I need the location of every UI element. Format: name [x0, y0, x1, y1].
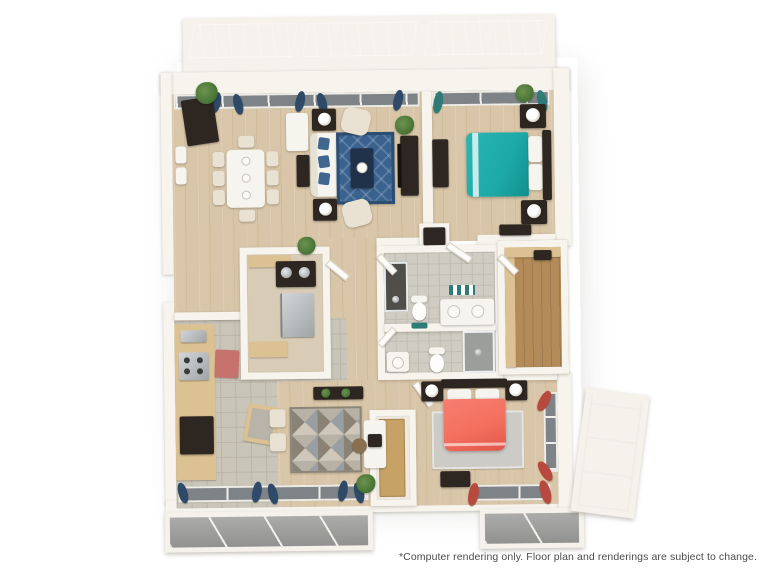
bedroom2-storage-bench: [440, 471, 470, 487]
disclaimer-text: *Computer rendering only. Floor plan and…: [399, 551, 757, 563]
sofa-pillow: [318, 137, 330, 150]
dining-chair: [267, 170, 279, 185]
kitchen-range: [179, 352, 209, 380]
range-burner: [197, 368, 203, 374]
kitchen-sink: [181, 330, 207, 342]
range-burner: [184, 368, 190, 374]
bedroom1-pillow: [528, 136, 542, 162]
den-side-chair: [269, 409, 285, 427]
toilet-bath1: [412, 302, 426, 320]
kitchen-wall-oven: [180, 416, 214, 454]
range-burner: [184, 357, 190, 363]
dining-chair: [213, 190, 225, 205]
refrigerator: [280, 293, 315, 337]
tv-screen: [397, 144, 402, 188]
media-console: [400, 136, 419, 196]
dining-place-setting: [242, 191, 251, 200]
wall-east-bedroom2: [557, 372, 573, 510]
laundry-shelf: [250, 341, 288, 357]
floor-plan: [0, 0, 764, 573]
wall-art-frame: [175, 146, 186, 163]
wall-art-frame: [176, 167, 187, 184]
sofa-pillow: [318, 172, 330, 185]
dining-place-setting: [242, 174, 251, 183]
bedroom1-bed-throw: [472, 133, 479, 197]
coffee-table-tray: [356, 162, 367, 173]
bedroom1-headboard: [542, 130, 552, 200]
balcony-south-left-floor: [170, 515, 368, 547]
dining-chair: [212, 152, 224, 167]
dining-chair: [239, 210, 255, 222]
dining-chair: [267, 189, 279, 204]
balcony-south-right-floor: [485, 513, 579, 544]
bedroom2-lamp: [425, 384, 438, 397]
kitchen-red-mat: [214, 349, 239, 378]
bath1-mat: [411, 322, 427, 328]
dining-chair: [213, 171, 225, 186]
desk-monitor: [368, 434, 382, 447]
bedroom1-accent-chest: [499, 224, 531, 235]
table-lamp: [319, 203, 332, 216]
den-side-chair: [270, 433, 286, 451]
wall-east-upper: [553, 68, 571, 246]
range-burner: [197, 357, 203, 363]
sideboard: [181, 96, 220, 146]
dining-chair: [266, 151, 278, 166]
bath1-teal-wall-art: [449, 285, 475, 295]
white-cabinet: [286, 113, 308, 151]
bedroom1-closet: [423, 227, 445, 245]
bedroom2-headboard: [441, 378, 507, 388]
dryer-drum: [299, 267, 310, 278]
sofa-console-table: [296, 155, 309, 187]
shower-drain: [392, 296, 399, 303]
geometric-rug: [289, 406, 362, 473]
vanity-sink-left: [447, 305, 460, 318]
closet-storage-box: [534, 250, 552, 260]
washer-drum: [281, 267, 292, 278]
dining-chair: [238, 136, 254, 148]
bedroom1-dresser: [432, 139, 449, 187]
wall-kitchen-half: [174, 312, 250, 321]
kitchen-counter-west: [174, 324, 216, 480]
balcony-north-glass-panel: [424, 20, 548, 56]
bedroom2-lamp: [509, 383, 522, 396]
bedroom1-lamp: [526, 108, 540, 122]
dining-place-setting: [241, 157, 250, 166]
shower2-drain: [475, 349, 482, 356]
bedroom1-pillow: [529, 164, 543, 190]
balcony-north-glass-panel: [188, 23, 298, 58]
sofa-pillow: [318, 155, 331, 169]
sofa-back: [310, 133, 318, 197]
floor-plan-canvas: *Computer rendering only. Floor plan and…: [0, 0, 764, 573]
bedroom1-lamp: [527, 204, 541, 218]
closet-shelf-north: [505, 247, 561, 258]
balcony-north-glass-panel: [302, 22, 418, 57]
table-lamp: [318, 113, 331, 126]
toilet-bath2: [430, 354, 444, 372]
vanity-sink-right: [471, 305, 484, 318]
desk-chair: [352, 438, 367, 453]
bath2-sink: [392, 357, 404, 369]
